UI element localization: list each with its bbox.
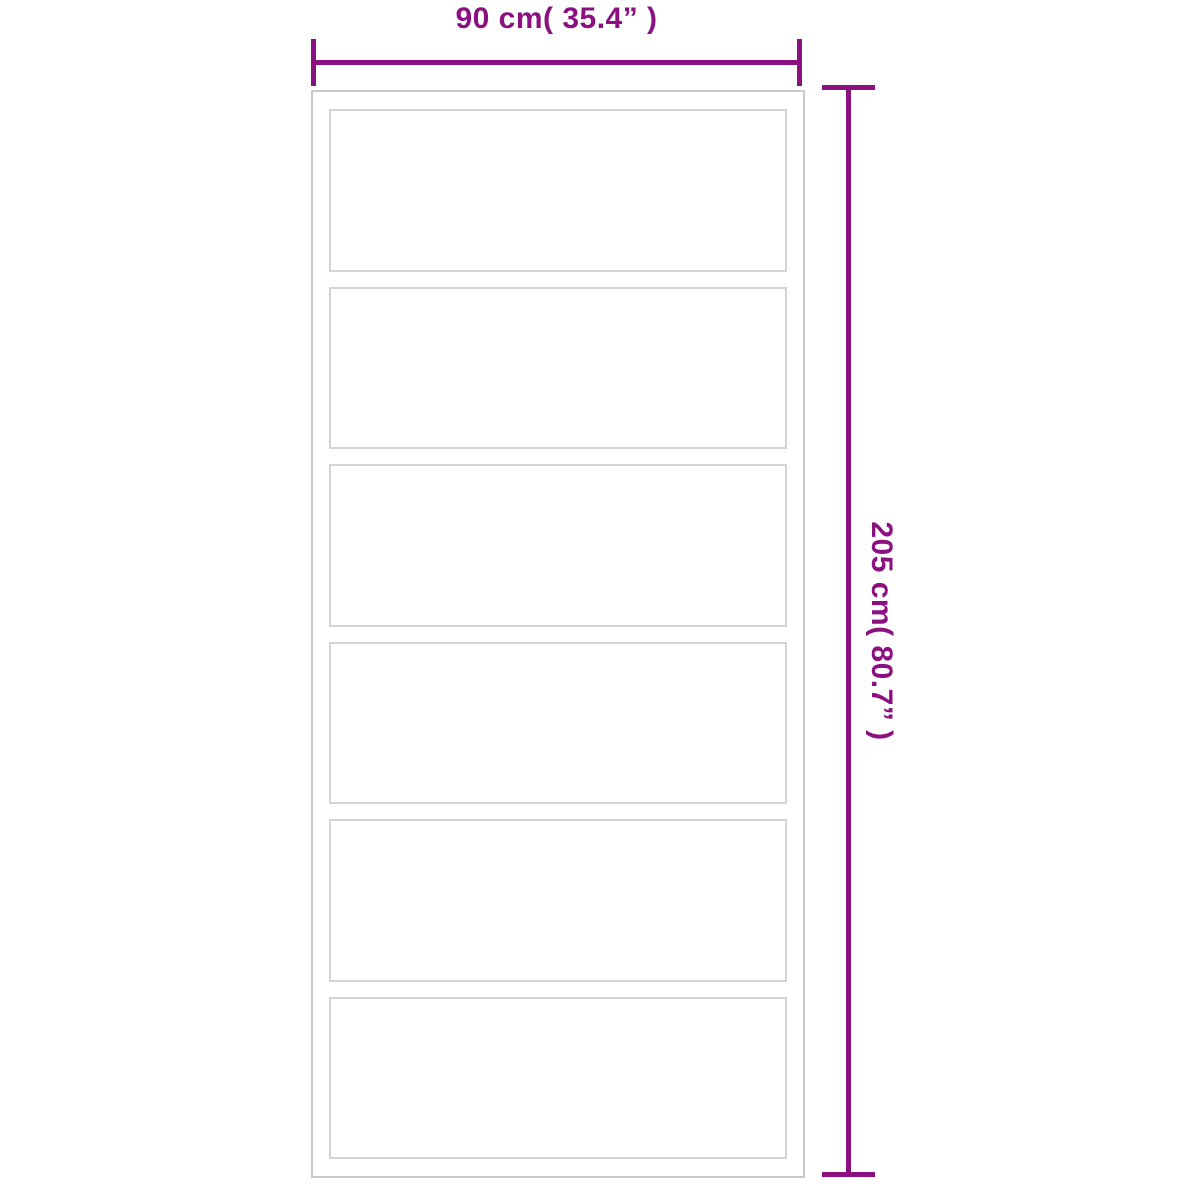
door-frame [311,90,805,1178]
height-dimension-line [846,85,851,1177]
width-dimension-tick-left [311,39,316,86]
height-dimension-tick-bottom [822,1172,875,1177]
width-dimension-line [311,60,802,65]
width-dimension-label: 90 cm( 35.4” ) [311,2,802,36]
diagram-canvas: 90 cm( 35.4” ) 205 cm( 80.7” ) [0,0,1200,1200]
height-dimension-label: 205 cm( 80.7” ) [864,521,898,740]
width-dimension-tick-right [797,39,802,86]
door-panel [329,464,787,627]
door-panel [329,642,787,805]
height-dimension-tick-top [822,85,875,90]
door-panel [329,997,787,1160]
door-panel [329,287,787,450]
door-panel [329,109,787,272]
door-panel [329,819,787,982]
